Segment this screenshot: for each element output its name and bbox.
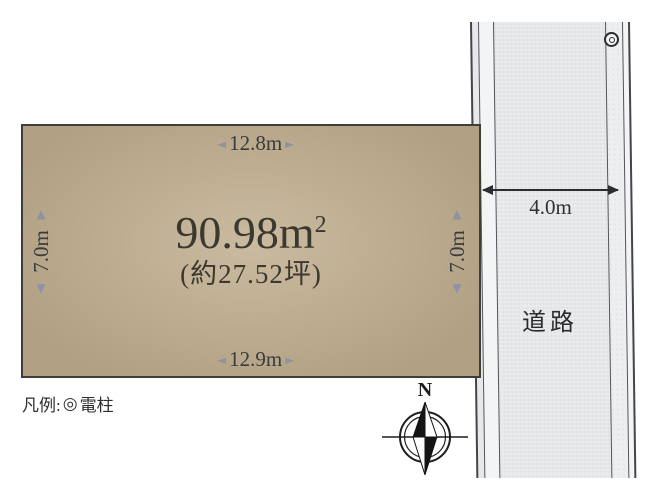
dimension-right-label: 7.0m — [445, 230, 470, 273]
arrow-left-icon: ◄ — [217, 354, 226, 366]
arrow-right-icon: ► — [285, 138, 294, 150]
plot-area-tsubo: (約27.52坪) — [175, 259, 326, 290]
plot-area-text: 90.98m2 (約27.52坪) — [175, 210, 326, 290]
plot-area-exponent: 2 — [315, 212, 327, 238]
land-plot-diagram: 4.0m 道路 ◄ 12.8m ► ◄ 12.9m ► ▲ 7.0m ▼ ▲ 7… — [0, 0, 657, 500]
dimension-left-label: 7.0m — [29, 230, 54, 273]
dimension-top: ◄ 12.8m ► — [217, 131, 295, 156]
road-width-arrow — [483, 189, 618, 191]
legend-item-label: 電柱 — [80, 391, 114, 416]
compass-north-label: N — [418, 379, 433, 401]
dimension-right: ▲ 7.0m ▼ — [445, 208, 469, 294]
road-name-label: 道路 — [470, 302, 630, 337]
plot-area-m2: 90.98m2 — [175, 210, 326, 256]
legend: 凡例: ◎ 電柱 — [22, 391, 114, 416]
dimension-bottom: ◄ 12.9m ► — [217, 347, 295, 372]
arrow-down-icon: ▼ — [36, 282, 45, 294]
utility-pole-icon-inner — [609, 37, 615, 43]
arrow-down-icon: ▼ — [452, 282, 461, 294]
road-strip — [470, 22, 636, 478]
utility-pole-icon — [604, 32, 619, 47]
utility-pole-legend-icon: ◎ — [63, 394, 78, 414]
road-surface — [493, 22, 611, 478]
arrow-up-icon: ▲ — [36, 208, 45, 220]
arrow-right-icon: ► — [285, 354, 294, 366]
legend-prefix: 凡例: — [22, 391, 61, 416]
road-edge-line-right — [628, 22, 636, 478]
dimension-top-label: 12.8m — [229, 131, 282, 156]
arrow-up-icon: ▲ — [452, 208, 461, 220]
road-width-label: 4.0m — [482, 195, 619, 220]
arrow-left-icon: ◄ — [217, 138, 226, 150]
dimension-bottom-label: 12.9m — [229, 347, 282, 372]
dimension-left: ▲ 7.0m ▼ — [29, 208, 53, 294]
land-parcel: ◄ 12.8m ► ◄ 12.9m ► ▲ 7.0m ▼ ▲ 7.0m ▼ 90… — [21, 124, 481, 378]
compass-rose-icon: N — [381, 378, 471, 482]
